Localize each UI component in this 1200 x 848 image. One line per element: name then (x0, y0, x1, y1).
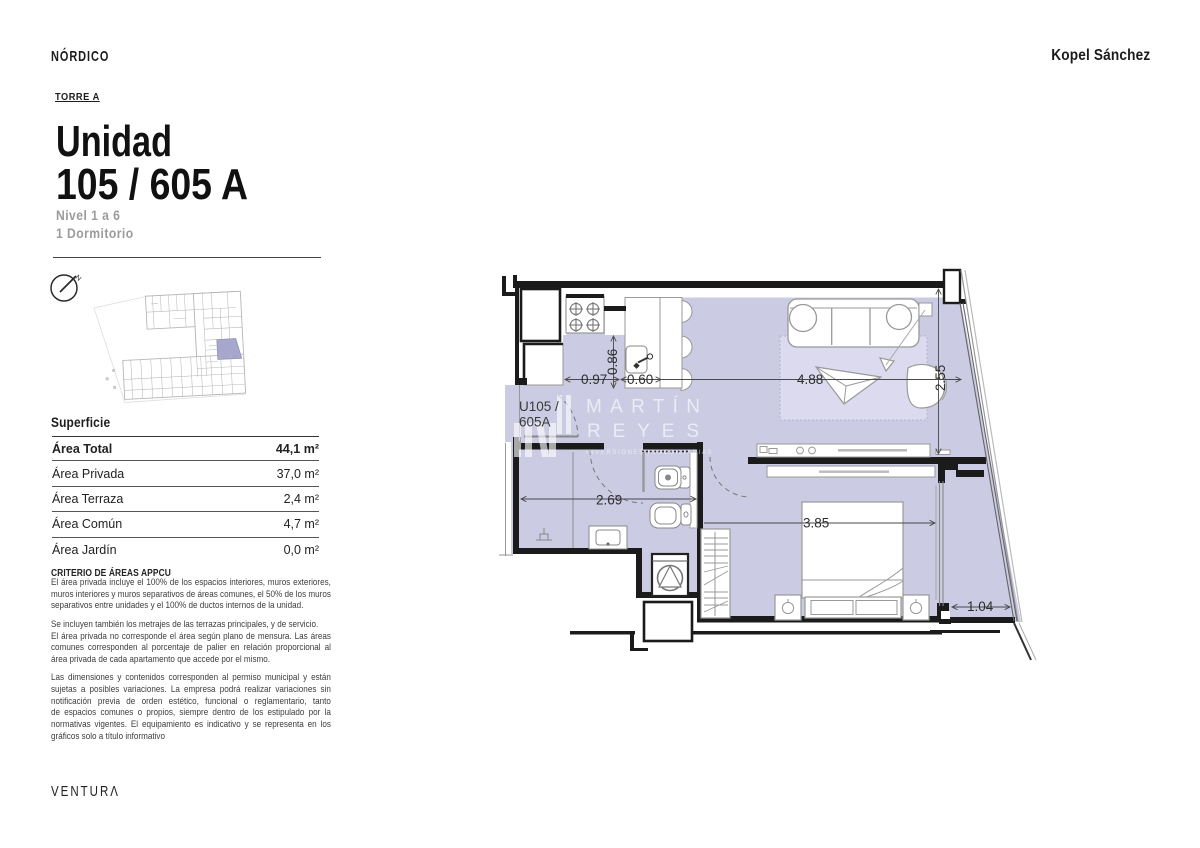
svg-text:0.60: 0.60 (627, 372, 653, 387)
svg-text:605A: 605A (519, 415, 551, 430)
svg-text:REYES: REYES (587, 421, 711, 442)
svg-text:INVERSIONES INMOBILIARIAS: INVERSIONES INMOBILIARIAS (586, 450, 713, 456)
svg-text:U105 /: U105 / (519, 399, 559, 414)
svg-text:3.85: 3.85 (803, 516, 829, 531)
svg-text:0.97: 0.97 (581, 372, 607, 387)
svg-text:MARTÍN: MARTÍN (586, 397, 708, 418)
svg-text:0.86: 0.86 (605, 349, 620, 375)
svg-text:2.69: 2.69 (596, 493, 622, 508)
svg-text:2.55: 2.55 (933, 365, 948, 391)
svg-text:4.88: 4.88 (797, 372, 823, 387)
svg-text:1.04: 1.04 (967, 599, 994, 614)
